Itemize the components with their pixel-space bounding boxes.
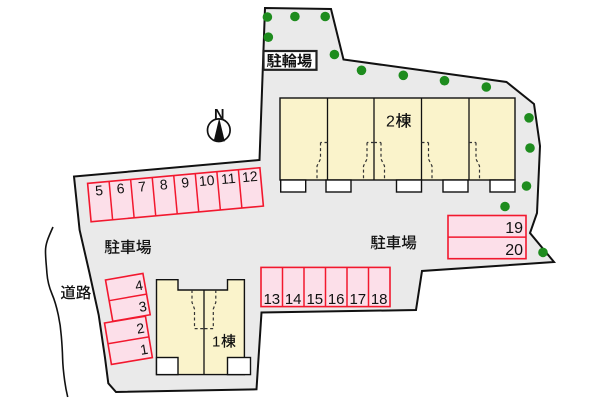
svg-text:6: 6: [116, 180, 125, 197]
svg-text:16: 16: [328, 291, 345, 308]
svg-text:13: 13: [263, 291, 280, 308]
svg-text:17: 17: [349, 291, 366, 308]
svg-text:18: 18: [371, 291, 388, 308]
svg-text:12: 12: [241, 168, 258, 185]
svg-text:N: N: [214, 107, 224, 123]
svg-text:20: 20: [505, 242, 523, 259]
svg-text:1: 1: [212, 334, 220, 351]
svg-text:11: 11: [220, 170, 236, 187]
svg-text:10: 10: [198, 172, 215, 189]
svg-text:14: 14: [285, 291, 302, 308]
svg-text:15: 15: [306, 291, 323, 308]
svg-text:19: 19: [505, 220, 523, 237]
svg-text:2: 2: [386, 114, 395, 131]
